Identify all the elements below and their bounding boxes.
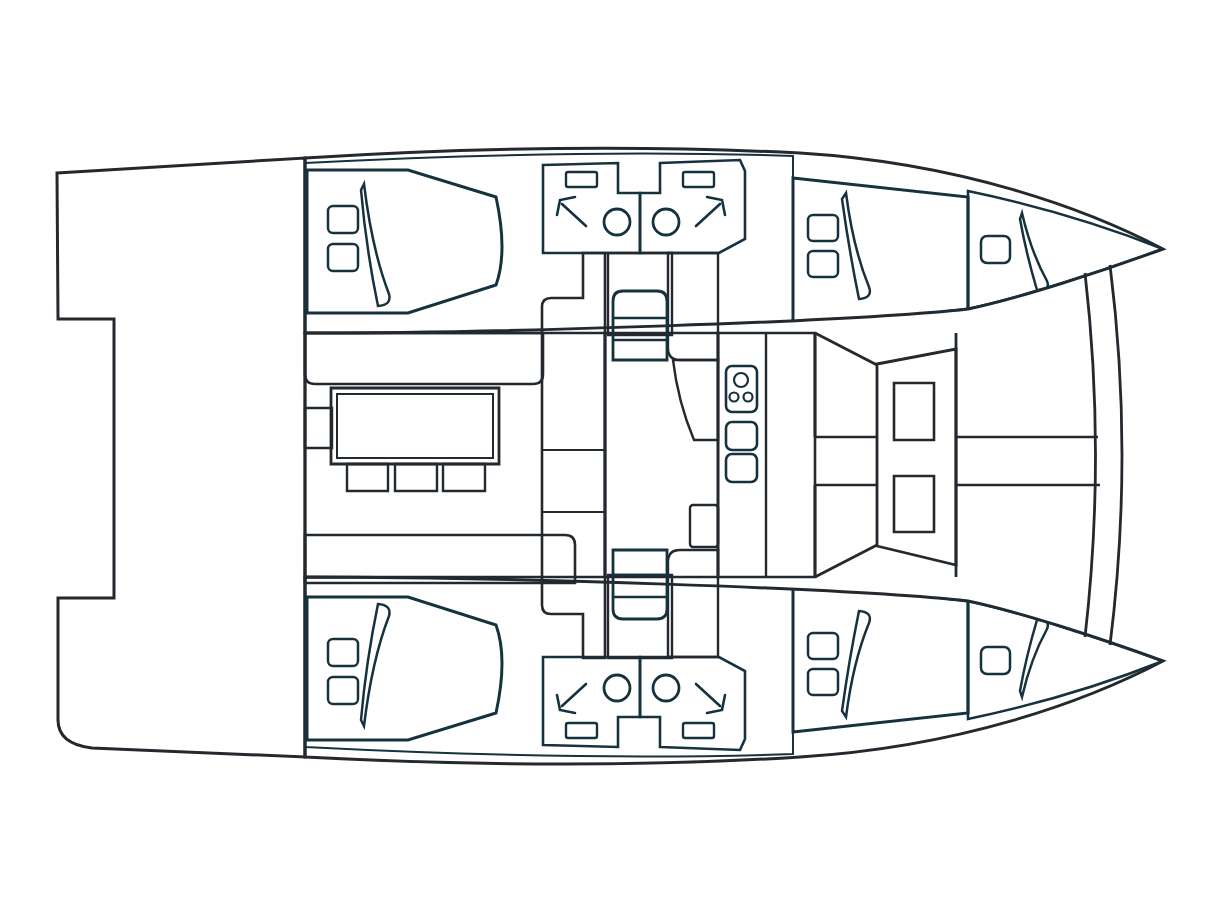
starboard-hull-interior — [305, 577, 1163, 757]
galley-sink — [726, 422, 757, 450]
bed-sheet-fold — [842, 193, 870, 299]
toilet — [683, 723, 714, 738]
saloon-sofa-aft — [305, 333, 543, 384]
toilet — [683, 172, 714, 187]
shower-icon — [696, 684, 725, 713]
bow-hatch — [981, 647, 1010, 674]
saloon-table-top — [337, 394, 493, 458]
basin — [653, 209, 679, 235]
starboard-landing — [668, 550, 718, 657]
pillow — [328, 677, 358, 704]
saloon-sole — [305, 333, 605, 577]
cockpit-corner — [815, 333, 877, 365]
bed-sheet-fold — [361, 184, 390, 306]
port-forward-head — [640, 160, 745, 253]
saloon-table — [331, 388, 499, 464]
pillow — [808, 669, 838, 695]
deck-plan-canvas — [0, 0, 1212, 909]
toilet — [566, 172, 597, 187]
pillow — [808, 633, 838, 659]
heads-door-gap — [618, 717, 660, 754]
cockpit-table — [894, 383, 934, 440]
side-seat — [305, 408, 332, 448]
starboard-forward-bed — [793, 580, 968, 732]
aft-deck-shape — [57, 158, 305, 757]
shower-icon — [696, 197, 725, 226]
burner — [744, 393, 753, 402]
basin — [604, 209, 630, 235]
stool — [443, 464, 485, 491]
galley-sink — [726, 454, 757, 482]
cockpit-corner — [815, 545, 877, 577]
chart-locker — [673, 360, 718, 440]
port-landing — [668, 253, 718, 360]
cockpit-table — [894, 476, 934, 532]
shower-icon — [557, 197, 586, 226]
starboard-forward-head — [640, 657, 745, 750]
heads-door-gap — [618, 156, 660, 193]
crossbeam-curve-inner — [1085, 273, 1096, 637]
aft-deck — [57, 158, 305, 757]
pillow — [808, 251, 838, 277]
bow-hatch — [981, 236, 1010, 263]
stool — [347, 464, 388, 491]
bow-locker-shape — [1020, 620, 1048, 697]
port-stairwell — [608, 253, 672, 335]
galley — [718, 333, 815, 577]
pillow — [328, 244, 358, 271]
bow-locker-shape — [1020, 213, 1048, 290]
starboard-bow-deck — [968, 601, 1163, 719]
pillow — [808, 215, 838, 241]
port-hull-interior — [305, 153, 1163, 333]
burner — [730, 393, 739, 402]
crossbeam-curve-outer — [1110, 265, 1122, 645]
forward-cockpit — [815, 333, 1100, 577]
shower-icon — [557, 684, 586, 713]
stool — [395, 464, 437, 491]
saloon-corridor — [605, 333, 718, 577]
cabinet-column — [542, 253, 605, 658]
bed-sheet-fold — [842, 611, 870, 717]
pillow — [328, 206, 358, 233]
bed-sheet-fold — [361, 604, 390, 726]
foredeck-crossbeam — [1085, 265, 1122, 645]
burner — [734, 373, 748, 387]
port-bow-deck — [968, 191, 1163, 309]
pillow — [328, 639, 358, 666]
galley-seat — [690, 505, 718, 547]
port-aft-bed — [307, 170, 502, 313]
starboard-aft-bed — [307, 597, 502, 740]
basin — [604, 675, 630, 701]
port-forward-bed — [793, 178, 968, 330]
basin — [653, 675, 679, 701]
toilet — [566, 723, 597, 738]
catamaran-deck-plan — [0, 0, 1212, 909]
